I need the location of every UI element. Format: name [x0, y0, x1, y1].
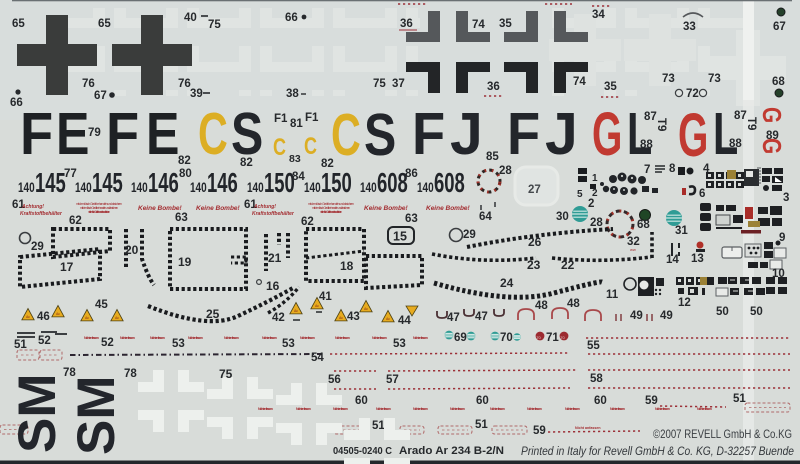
svg-text:70: 70 [500, 332, 513, 344]
svg-text:04505-0240 C: 04505-0240 C [333, 445, 392, 457]
svg-text:G: G [678, 101, 708, 169]
svg-text:26: 26 [528, 235, 542, 249]
svg-text:65: 65 [12, 18, 25, 30]
svg-text:29: 29 [31, 241, 44, 253]
svg-text:608: 608 [434, 168, 465, 199]
svg-text:35: 35 [499, 18, 512, 30]
svg-text:50: 50 [716, 306, 729, 318]
svg-text:79: 79 [88, 127, 101, 139]
svg-text:150: 150 [264, 168, 295, 199]
svg-text:Achtung!: Achtung! [21, 204, 44, 210]
svg-text:1: 1 [592, 173, 598, 184]
svg-text:F: F [412, 102, 445, 168]
svg-text:140: 140 [360, 179, 377, 195]
svg-text:83: 83 [289, 153, 301, 165]
svg-text:Nicht anfassen: Nicht anfassen [372, 336, 387, 340]
svg-text:67: 67 [773, 21, 786, 33]
svg-text:Ac: Ac [56, 312, 60, 316]
svg-text:J: J [545, 101, 578, 167]
svg-text:31: 31 [675, 225, 688, 237]
svg-text:85: 85 [486, 151, 499, 163]
svg-text:66: 66 [285, 12, 298, 24]
svg-text:63: 63 [405, 213, 418, 225]
svg-text:49: 49 [630, 310, 643, 322]
svg-text:140: 140 [247, 179, 264, 195]
svg-text:Keine Bombe!: Keine Bombe! [138, 205, 183, 212]
svg-text:Nicht anfassen: Nicht anfassen [150, 336, 165, 340]
svg-text:81: 81 [290, 118, 303, 130]
svg-text:60: 60 [594, 395, 607, 407]
svg-text:25: 25 [206, 307, 220, 321]
svg-text:Nicht anfassen: Nicht anfassen [575, 426, 601, 430]
svg-text:9: 9 [779, 232, 785, 244]
svg-text:Nicht anfassen: Nicht anfassen [450, 407, 465, 411]
svg-text:87: 87 [644, 111, 657, 123]
svg-text:S: S [364, 103, 396, 169]
svg-text:51: 51 [733, 393, 746, 405]
svg-text:37: 37 [392, 78, 405, 90]
svg-text:52: 52 [38, 335, 51, 347]
svg-text:Achtung!: Achtung! [253, 204, 276, 210]
svg-text:SM: SM [67, 376, 126, 456]
svg-text:27: 27 [528, 184, 541, 196]
svg-text:86: 86 [405, 168, 418, 180]
svg-text:46: 46 [37, 311, 50, 323]
svg-text:©2007 REVELL GmbH & Co.KG: ©2007 REVELL GmbH & Co.KG [653, 427, 792, 441]
svg-text:Nicht anfassen: Nicht anfassen [565, 407, 580, 411]
svg-text:Nicht anfassen: Nicht anfassen [335, 336, 350, 340]
svg-text:21: 21 [268, 251, 282, 265]
svg-text:145: 145 [35, 168, 66, 199]
svg-text:55: 55 [587, 340, 600, 352]
svg-text:18: 18 [340, 259, 354, 273]
svg-text:51: 51 [475, 419, 488, 431]
svg-text:22: 22 [561, 258, 575, 272]
svg-text:G: G [757, 107, 786, 123]
svg-text:57: 57 [386, 374, 399, 386]
svg-text:24: 24 [500, 276, 514, 290]
svg-text:Arado Ar 234 B-2/N: Arado Ar 234 B-2/N [399, 445, 504, 457]
svg-text:48: 48 [567, 298, 580, 310]
svg-text:71: 71 [546, 332, 559, 344]
svg-text:8: 8 [669, 163, 676, 175]
svg-text:74: 74 [472, 19, 485, 31]
svg-text:Nicht anfassen: Nicht anfassen [188, 336, 203, 340]
svg-text:F: F [106, 102, 139, 168]
svg-text:SM: SM [8, 374, 67, 454]
svg-text:75: 75 [208, 19, 221, 31]
svg-text:73: 73 [708, 73, 721, 85]
svg-text:88: 88 [729, 138, 742, 150]
svg-text:Nicht anfassen: Nicht anfassen [655, 407, 670, 411]
svg-text:Ac: Ac [294, 309, 298, 313]
svg-text:64: 64 [479, 211, 492, 223]
svg-text:T9: T9 [655, 118, 667, 131]
svg-text:140: 140 [75, 179, 92, 195]
svg-text:T9: T9 [745, 117, 757, 130]
svg-text:20: 20 [125, 243, 139, 257]
svg-text:E: E [56, 100, 89, 167]
svg-text:F: F [20, 102, 53, 168]
svg-text:F: F [507, 102, 540, 168]
svg-text:75: 75 [219, 367, 233, 381]
svg-text:59: 59 [533, 425, 546, 437]
svg-text:7: 7 [644, 164, 650, 176]
svg-text:Nicht anfassen: Nicht anfassen [258, 407, 273, 411]
svg-text:Ac: Ac [115, 316, 119, 320]
svg-text:140: 140 [304, 179, 321, 195]
svg-text:50: 50 [750, 306, 763, 318]
svg-text:62: 62 [69, 215, 82, 227]
svg-text:Kraftstoffbehälter: Kraftstoffbehälter [20, 211, 63, 217]
svg-text:58: 58 [590, 373, 603, 385]
svg-text:Ac: Ac [85, 316, 89, 320]
svg-text:16: 16 [266, 279, 280, 293]
svg-text:Nicht anfassen: Nicht anfassen [262, 336, 277, 340]
svg-text:77: 77 [64, 168, 77, 180]
svg-text:44: 44 [398, 315, 411, 327]
svg-text:68: 68 [637, 219, 650, 231]
svg-text:145: 145 [92, 168, 123, 199]
svg-text:45: 45 [95, 299, 108, 311]
svg-text:70: 70 [560, 335, 565, 340]
svg-text:Nicht anfassen: Nicht anfassen [376, 407, 391, 411]
svg-text:63: 63 [175, 212, 188, 224]
svg-text:39: 39 [190, 88, 203, 100]
svg-text:C: C [273, 135, 286, 161]
svg-text:G: G [592, 100, 622, 168]
svg-text:60: 60 [355, 395, 368, 407]
svg-text:80: 80 [179, 168, 192, 180]
svg-text:C: C [331, 102, 361, 168]
svg-text:47: 47 [447, 312, 460, 324]
svg-text:5: 5 [577, 189, 583, 200]
svg-text:75: 75 [373, 78, 386, 90]
svg-text:3: 3 [783, 192, 789, 204]
svg-text:146: 146 [207, 168, 238, 199]
svg-text:59: 59 [645, 395, 658, 407]
svg-text:56: 56 [328, 374, 341, 386]
svg-text:146: 146 [148, 168, 179, 199]
svg-text:38: 38 [286, 88, 299, 100]
svg-text:Ac: Ac [26, 315, 30, 319]
svg-text:Ac: Ac [315, 304, 319, 308]
svg-text:13: 13 [691, 253, 704, 265]
svg-text:Ac: Ac [339, 316, 343, 320]
svg-text:53: 53 [282, 338, 295, 350]
svg-text:Nicht anfassen: Nicht anfassen [527, 407, 542, 411]
svg-text:17: 17 [60, 260, 74, 274]
svg-text:12: 12 [678, 297, 691, 309]
svg-text:C: C [304, 134, 317, 160]
svg-text:Nicht anfassen: Nicht anfassen [224, 336, 239, 340]
svg-text:23: 23 [527, 258, 541, 272]
svg-text:Keine Bombe!: Keine Bombe! [426, 205, 471, 212]
svg-text:Keine Bombe!: Keine Bombe! [364, 205, 409, 212]
svg-text:70: 70 [536, 335, 541, 340]
svg-text:J: J [450, 101, 483, 167]
svg-text:G: G [757, 138, 786, 154]
svg-text:36: 36 [400, 18, 413, 30]
svg-text:140: 140 [417, 179, 434, 195]
svg-text:140: 140 [190, 179, 207, 195]
svg-text:mit dem lösch Gerät behandeln: mit dem lösch Gerät behandeln und absich… [320, 210, 342, 214]
svg-text:82: 82 [240, 157, 253, 169]
svg-text:Nicht anfassen: Nicht anfassen [610, 407, 625, 411]
svg-text:62: 62 [301, 216, 314, 228]
svg-text:76: 76 [178, 78, 191, 90]
svg-text:2: 2 [588, 198, 594, 210]
svg-text:51: 51 [14, 339, 27, 351]
svg-text:82: 82 [178, 155, 191, 167]
svg-text:49: 49 [660, 310, 673, 322]
svg-text:Nicht anfassen: Nicht anfassen [300, 336, 315, 340]
svg-text:F1: F1 [274, 113, 288, 125]
svg-text:140: 140 [18, 179, 35, 195]
svg-text:68: 68 [772, 76, 785, 88]
svg-text:73: 73 [662, 73, 675, 85]
svg-text:Nicht anfassen: Nicht anfassen [84, 336, 99, 340]
svg-text:F1: F1 [305, 112, 319, 124]
svg-text:60: 60 [476, 395, 489, 407]
svg-text:608: 608 [377, 168, 408, 199]
svg-text:53: 53 [393, 338, 406, 350]
svg-text:C: C [198, 101, 228, 167]
svg-text:14: 14 [666, 254, 679, 266]
svg-text:65: 65 [98, 18, 111, 30]
svg-text:54: 54 [311, 352, 324, 364]
svg-text:76: 76 [82, 78, 95, 90]
svg-text:35: 35 [604, 81, 617, 93]
svg-text:78: 78 [63, 367, 76, 379]
svg-text:15: 15 [393, 230, 407, 244]
svg-text:36: 36 [487, 81, 500, 93]
svg-text:72: 72 [686, 88, 699, 100]
svg-text:28: 28 [590, 217, 603, 229]
svg-text:30: 30 [556, 211, 569, 223]
svg-text:Kraftstoffbehälter: Kraftstoffbehälter [252, 211, 295, 217]
svg-text:43: 43 [347, 311, 360, 323]
svg-text:Nicht anfassen: Nicht anfassen [413, 407, 428, 411]
svg-text:Nicht anfassen: Nicht anfassen [697, 407, 712, 411]
svg-text:Printed in Italy for Revell Gm: Printed in Italy for Revell GmbH & Co. K… [521, 444, 794, 458]
svg-text:33: 33 [683, 21, 696, 33]
svg-text:Nicht anfassen: Nicht anfassen [333, 407, 348, 411]
svg-text:69: 69 [454, 332, 467, 344]
svg-text:11: 11 [606, 289, 619, 301]
svg-text:Nicht anfassen: Nicht anfassen [490, 407, 505, 411]
svg-text:Nicht anfassen: Nicht anfassen [296, 407, 311, 411]
svg-text:28: 28 [499, 165, 512, 177]
svg-text:51: 51 [372, 420, 385, 432]
svg-text:41: 41 [319, 291, 332, 303]
svg-text:88: 88 [640, 139, 653, 151]
svg-text:Ac: Ac [386, 317, 390, 321]
svg-text:29: 29 [463, 229, 476, 241]
svg-text:48: 48 [535, 300, 548, 312]
svg-text:140: 140 [131, 179, 148, 195]
svg-text:E: E [146, 100, 179, 167]
svg-text:47: 47 [475, 311, 488, 323]
svg-text:19: 19 [178, 255, 192, 269]
svg-text:Nicht anfassen: Nicht anfassen [120, 336, 135, 340]
svg-text:40: 40 [184, 12, 197, 24]
svg-text:42: 42 [272, 312, 285, 324]
svg-text:34: 34 [592, 9, 605, 21]
svg-text:150: 150 [321, 168, 352, 199]
svg-text:mit dem lösch Gerät behandeln: mit dem lösch Gerät behandeln und absich… [88, 210, 110, 214]
svg-text:ww: ww [630, 247, 636, 252]
svg-text:52: 52 [101, 337, 114, 349]
svg-text:87: 87 [734, 110, 747, 122]
svg-text:74: 74 [573, 76, 586, 88]
svg-text:78: 78 [124, 368, 137, 380]
svg-text:6: 6 [699, 188, 705, 200]
svg-text:53: 53 [172, 338, 185, 350]
svg-text:67: 67 [94, 90, 107, 102]
svg-text:Keine Bombe!: Keine Bombe! [196, 205, 241, 212]
svg-text:Nicht anfassen: Nicht anfassen [413, 336, 428, 340]
svg-text:Ac: Ac [364, 307, 368, 311]
